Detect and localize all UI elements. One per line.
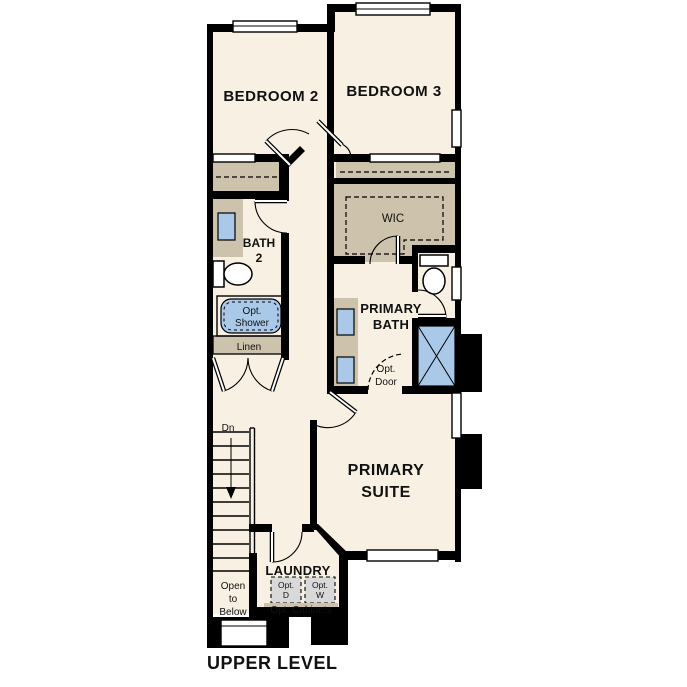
opt-shower-label-1: Opt.: [243, 306, 262, 317]
bedroom2-label: BEDROOM 2: [223, 88, 318, 105]
floor-plan-page: BEDROOM 2 BEDROOM 3 BATH 2 WIC PRIMARY B…: [0, 0, 687, 687]
opt-dryer-label-2: D: [283, 590, 289, 600]
primary-suite-label-2: SUITE: [361, 484, 411, 501]
bedroom2-closet: [213, 160, 279, 195]
opt-dryer-label-1: Opt.: [278, 580, 294, 590]
bedroom3-label: BEDROOM 3: [346, 83, 441, 100]
opt-shower-label-2: Shower: [235, 318, 270, 329]
bath2-toilet-bowl-icon: [224, 263, 252, 285]
bath2-label-1: BATH: [243, 236, 275, 250]
primary-suite-window-right: [452, 393, 461, 438]
primary-toilet-tank-icon: [420, 255, 448, 266]
primary-sink1-icon: [337, 309, 354, 335]
laundry-label: LAUNDRY: [265, 563, 330, 578]
primary-toilet-bowl-icon: [423, 268, 445, 294]
primary-bath-label-2: BATH: [373, 317, 409, 332]
primary-suite-label-1: PRIMARY: [348, 462, 425, 479]
primary-sink2-icon: [337, 357, 354, 383]
stairwell-bay-window: [221, 620, 267, 646]
bedroom3-window-right: [452, 110, 461, 147]
primary-suite-window-bottom: [367, 550, 438, 561]
bedroom3-closet-opening: [370, 154, 440, 162]
bath2-sink-icon: [218, 213, 235, 240]
linen-label: Linen: [237, 342, 261, 353]
opt-cabinets-label: Opt. Cabinets: [270, 605, 331, 616]
open-below-label-3: Below: [219, 607, 247, 618]
opt-door-label-2: Door: [375, 377, 397, 388]
stairs-dn-label: Dn: [222, 423, 235, 434]
opt-washer-label-2: W: [316, 590, 324, 600]
open-below-label-1: Open: [221, 581, 245, 592]
bath2-label-2: 2: [256, 251, 263, 265]
bath2-toilet-tank-icon: [213, 261, 224, 287]
upper-level-floor-plan: BEDROOM 2 BEDROOM 3 BATH 2 WIC PRIMARY B…: [0, 0, 687, 687]
toilet-room-window: [452, 267, 461, 300]
primary-bath-label-1: PRIMARY: [360, 301, 422, 316]
plan-title: UPPER LEVEL: [207, 653, 338, 673]
bedroom2-closet-opening: [213, 154, 255, 162]
wic-label: WIC: [382, 213, 404, 225]
opt-washer-label-1: Opt.: [312, 580, 328, 590]
open-below-label-2: to: [229, 594, 238, 605]
opt-door-label-1: Opt.: [377, 364, 396, 375]
